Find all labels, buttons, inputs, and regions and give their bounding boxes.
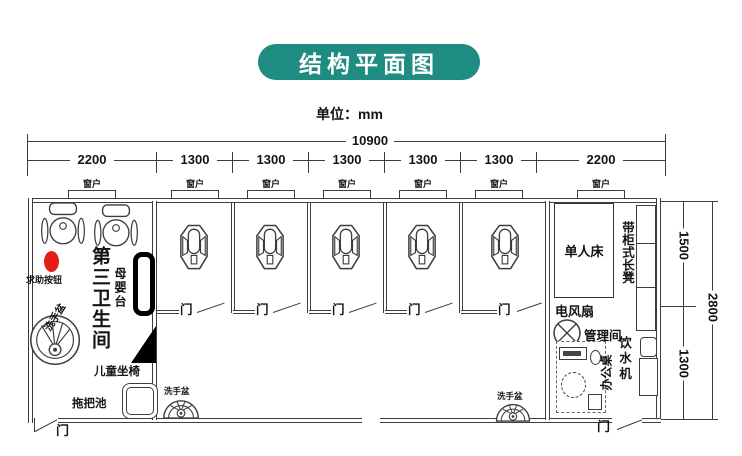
monitor-icon — [559, 347, 587, 360]
wall-bottom-right — [642, 418, 661, 423]
stall-front-wall — [157, 310, 179, 314]
unit-label: 单位：mm — [316, 104, 383, 124]
window-label: 窗户 — [323, 177, 371, 190]
dim-right-top: 1500 — [677, 229, 692, 263]
office-desk-label: 办公桌 — [598, 347, 615, 399]
dim-ext-top — [661, 201, 718, 202]
stall-partition — [307, 203, 311, 313]
dim-seg-6: 1300 — [477, 152, 521, 167]
water-dispenser-label: 饮水机 — [616, 336, 632, 383]
window-rect — [68, 190, 116, 199]
cabinet-box — [636, 243, 656, 288]
help-button-icon — [44, 251, 59, 272]
dim-right-total: 2800 — [706, 291, 721, 325]
child-seat-label: 儿童坐椅 — [94, 363, 140, 379]
dim-right-bottom: 1300 — [677, 347, 692, 381]
dim-seg-1: 2200 — [70, 152, 114, 167]
door-leaf — [273, 303, 301, 313]
stall-door-label: 门 — [332, 299, 345, 318]
window-label: 窗户 — [68, 177, 116, 190]
stall-front-wall — [385, 310, 407, 314]
window-rect — [475, 190, 523, 199]
dim-ext-mid — [658, 306, 696, 307]
washbasin-icon — [493, 400, 533, 422]
dim-seg-7: 2200 — [579, 152, 623, 167]
bed-rect: 单人床 — [554, 203, 614, 298]
dim-total: 10900 — [346, 133, 394, 148]
door-leaf — [349, 303, 377, 313]
baby-table-icon — [133, 252, 155, 316]
dim-seg-3: 1300 — [249, 152, 293, 167]
floor-plan-canvas: 结构平面图 单位：mm 10900 2200 1300 1300 1300 13… — [0, 0, 742, 456]
help-button-label: 求助按钮 — [26, 273, 62, 286]
squat-toilet-icon — [407, 224, 437, 270]
third-restroom-label: 第三卫生间 — [88, 246, 111, 351]
stall-door-label: 门 — [256, 299, 269, 318]
window-rect — [399, 190, 447, 199]
window-label: 窗户 — [171, 177, 219, 190]
stall-front-wall — [461, 310, 497, 314]
monitor-screen — [563, 351, 581, 356]
banner: 结构平面图 — [258, 44, 480, 80]
dim-tick — [384, 152, 385, 173]
mop-pool-inner — [126, 387, 154, 415]
left-room-door-label: 门 — [56, 420, 69, 439]
door-leaf — [425, 303, 453, 313]
window-label: 窗户 — [399, 177, 447, 190]
squat-toilet-icon — [490, 224, 520, 270]
dim-tick — [156, 152, 157, 173]
stall-door-label: 门 — [180, 299, 193, 318]
accessible-toilet-icon — [40, 202, 86, 250]
accessible-toilet-icon — [93, 204, 139, 252]
chair-icon — [561, 372, 586, 398]
water-dispenser-box — [640, 337, 657, 357]
dim-tick — [232, 152, 233, 173]
baby-table-label: 母婴台 — [112, 267, 127, 309]
dim-seg-2: 1300 — [173, 152, 217, 167]
management-door-label: 门 — [597, 416, 610, 435]
dim-seg-5: 1300 — [401, 152, 445, 167]
stall-front-wall — [233, 310, 255, 314]
dim-tick — [27, 134, 28, 176]
squat-toilet-icon — [179, 224, 209, 270]
door-leaf — [617, 419, 643, 430]
stall-door-label: 门 — [408, 299, 421, 318]
window-label: 窗户 — [475, 177, 523, 190]
squat-toilet-icon — [331, 224, 361, 270]
mop-pool-icon — [122, 383, 158, 419]
stall-partition — [231, 203, 235, 313]
stall-partition — [459, 203, 463, 313]
window-label: 窗户 — [247, 177, 295, 190]
window-rect — [171, 190, 219, 199]
stall-door-label: 门 — [498, 299, 511, 318]
window-rect — [323, 190, 371, 199]
cabinet-box — [636, 287, 656, 331]
door-leaf — [197, 303, 225, 313]
window-label: 窗户 — [577, 177, 625, 190]
cabinet-box — [636, 205, 656, 244]
dim-tick — [665, 134, 666, 176]
wall-divider-management — [545, 201, 550, 420]
door-leaf — [517, 303, 542, 312]
water-dispenser-box — [639, 358, 658, 396]
bench-label: 带柜式长凳 — [618, 221, 636, 284]
single-bed-label: 单人床 — [564, 241, 603, 260]
stall-partition — [383, 203, 387, 313]
dim-seg-4: 1300 — [325, 152, 369, 167]
banner-title: 结构平面图 — [299, 45, 439, 79]
mop-pool-label: 拖把池 — [72, 395, 107, 411]
dim-tick — [460, 152, 461, 173]
window-rect — [247, 190, 295, 199]
dim-tick — [308, 152, 309, 173]
washbasin-icon — [160, 396, 202, 419]
window-rect — [577, 190, 625, 199]
door-leaf — [35, 419, 58, 432]
stall-front-wall — [309, 310, 331, 314]
dim-ext-bottom — [661, 419, 718, 420]
squat-toilet-icon — [255, 224, 285, 270]
dim-tick — [536, 152, 537, 173]
